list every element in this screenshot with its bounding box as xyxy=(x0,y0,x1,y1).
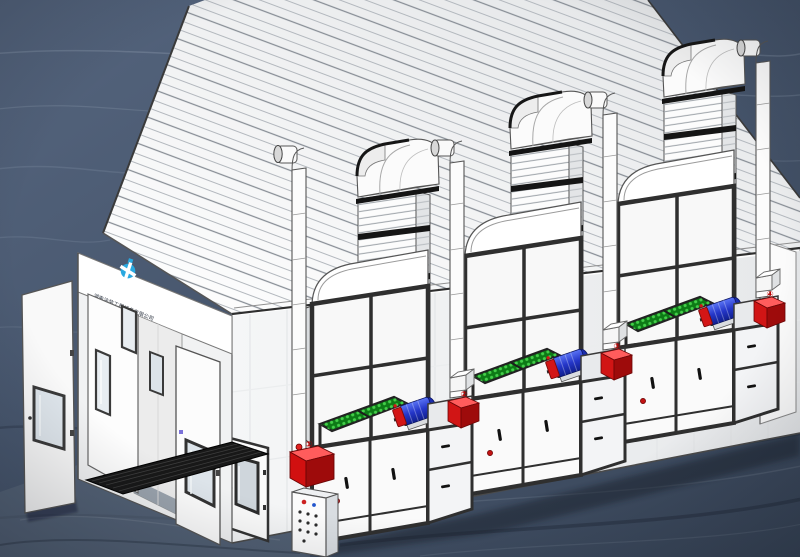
scene-canvas: 湖南涂装工程设备有限公司 xyxy=(0,0,800,557)
vignette xyxy=(0,0,800,557)
spray-booth-illustration: 湖南涂装工程设备有限公司 xyxy=(0,0,800,557)
